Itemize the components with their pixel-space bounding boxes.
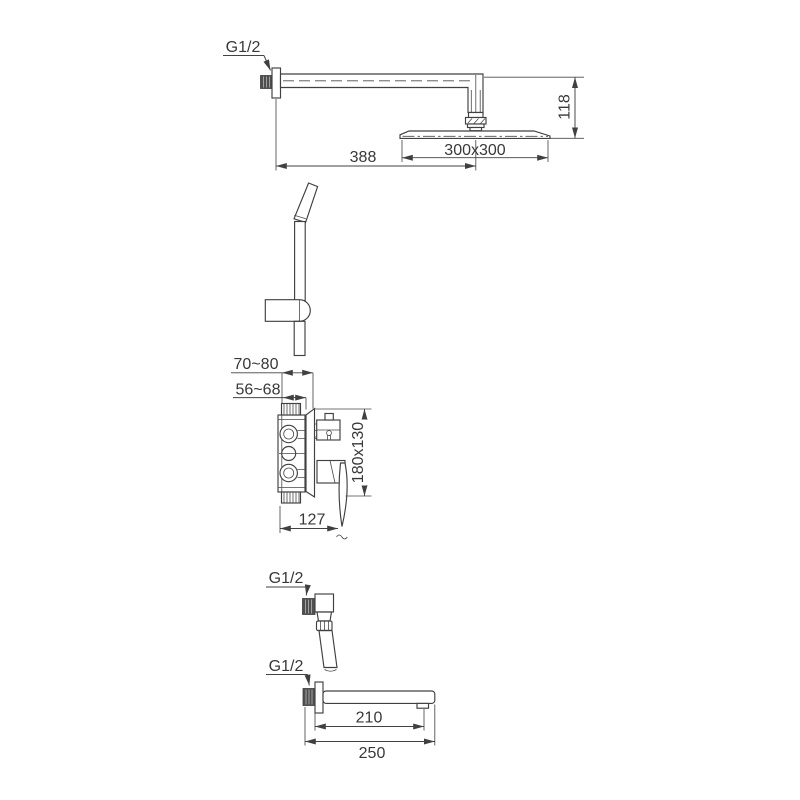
tub-spout: G1/2 210 250 xyxy=(266,658,435,762)
dim-118-label: 118 xyxy=(557,94,574,120)
shower-arm xyxy=(281,74,484,113)
dim-210-label: 210 xyxy=(356,710,383,727)
technical-drawing: G1/2 118 xyxy=(0,0,800,800)
hand-shower-hose xyxy=(294,321,305,355)
hand-shower-assembly xyxy=(265,183,317,356)
cover-plate xyxy=(306,409,315,497)
spout-thread-label: G1/2 xyxy=(269,658,304,675)
drawing-sheet: G1/2 118 xyxy=(0,0,800,800)
cartridge-tab xyxy=(325,414,333,421)
dimension-210: 210 xyxy=(315,709,424,731)
dimension-300x300: 300x300 xyxy=(402,140,548,162)
mixer-lever xyxy=(339,463,347,527)
hand-shower-body xyxy=(295,222,306,301)
dimension-127: 127 xyxy=(280,506,338,533)
leader-line xyxy=(306,587,307,596)
mixer-valve-assembly: 70~80 56~68 xyxy=(231,356,372,539)
dim-56-68-label: 56~68 xyxy=(236,382,281,399)
outlet-hose xyxy=(319,631,337,668)
wall-bracket xyxy=(265,300,310,322)
break-symbol xyxy=(337,535,348,539)
elbow-taper xyxy=(317,612,332,621)
valve-inlet-bottom xyxy=(280,464,297,481)
shower-head-plate xyxy=(400,131,550,138)
dim-180x130-label: 180x130 xyxy=(350,422,367,483)
spout-flange xyxy=(315,682,323,713)
dim-300x300-label: 300x300 xyxy=(444,142,505,159)
head-connector xyxy=(466,113,487,131)
wall-outlet-elbow: G1/2 xyxy=(266,570,337,671)
leader-line xyxy=(308,675,310,686)
dim-388-label: 388 xyxy=(350,149,377,166)
spout-body xyxy=(323,691,435,703)
rain-shower-thread-label: G1/2 xyxy=(226,39,261,56)
elbow-body xyxy=(315,594,334,612)
rain-shower-assembly: G1/2 118 xyxy=(223,39,584,171)
valve-inlet-top xyxy=(280,425,297,442)
dim-70-80-label: 70~80 xyxy=(234,356,279,373)
leader-line xyxy=(264,56,271,71)
dim-127-label: 127 xyxy=(299,512,326,529)
dimension-118: 118 xyxy=(484,77,584,138)
dim-250-label: 250 xyxy=(359,745,386,762)
outlet-thread-label: G1/2 xyxy=(269,570,304,587)
spout-outlet xyxy=(417,703,429,708)
wall-flange xyxy=(272,68,281,98)
